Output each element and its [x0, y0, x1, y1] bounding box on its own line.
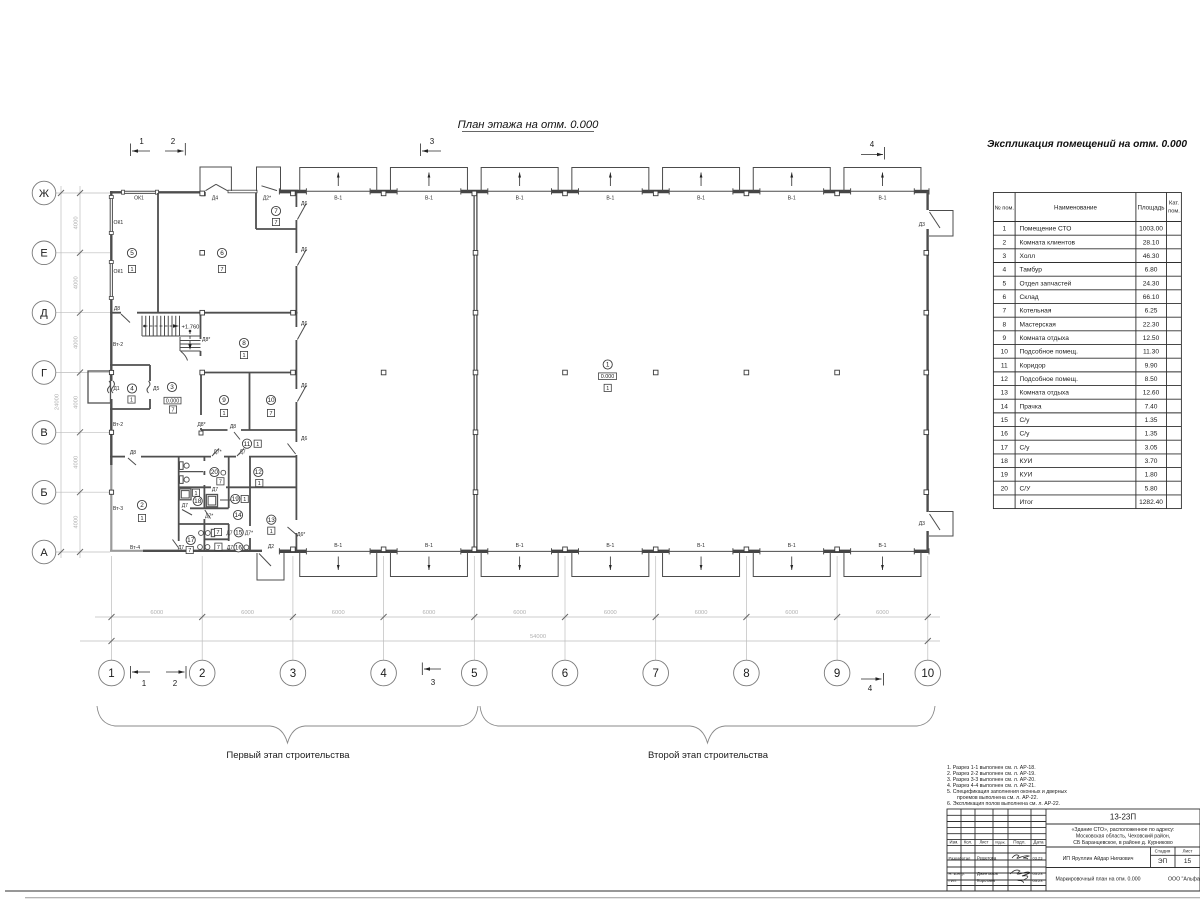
svg-text:19: 19 — [232, 496, 240, 503]
svg-text:В-1: В-1 — [334, 196, 342, 202]
svg-text:Отдел запчастей: Отдел запчастей — [1020, 279, 1072, 287]
svg-text:5: 5 — [130, 250, 134, 257]
svg-text:22.30: 22.30 — [1143, 321, 1160, 328]
svg-text:Первый этап строительства: Первый этап строительства — [226, 750, 350, 761]
svg-text:1: 1 — [139, 137, 144, 146]
svg-text:6000: 6000 — [695, 610, 708, 616]
svg-text:В-1: В-1 — [516, 543, 524, 549]
svg-text:4000: 4000 — [74, 516, 80, 529]
svg-text:1.35: 1.35 — [1145, 417, 1158, 424]
svg-text:13-23П: 13-23П — [1110, 813, 1136, 822]
svg-text:В-1: В-1 — [878, 196, 886, 202]
svg-text:ООО "Альфа: ООО "Альфа — [1168, 877, 1200, 883]
svg-text:Решетова: Решетова — [977, 856, 997, 861]
svg-text:3: 3 — [430, 137, 435, 146]
svg-text:Д8*: Д8* — [197, 422, 205, 428]
svg-text:№ пом.: № пом. — [995, 206, 1015, 212]
svg-text:Д7: Д7 — [226, 531, 232, 537]
svg-text:1: 1 — [108, 668, 114, 680]
svg-text:15: 15 — [1001, 417, 1009, 424]
svg-text:Н. контр.: Н. контр. — [949, 871, 966, 876]
svg-text:4: 4 — [130, 386, 134, 393]
svg-text:СБ Баранцевское, в районе д. К: СБ Баранцевское, в районе д. Курниково — [1073, 839, 1173, 846]
svg-text:7: 7 — [652, 668, 658, 680]
svg-text:20: 20 — [211, 469, 219, 476]
svg-text:Кол.: Кол. — [964, 840, 972, 845]
svg-text:Д6: Д6 — [301, 436, 307, 442]
svg-text:Лист: Лист — [1183, 849, 1194, 854]
svg-text:Е: Е — [40, 248, 47, 260]
svg-text:3: 3 — [290, 668, 296, 680]
svg-text:В: В — [40, 427, 47, 439]
svg-text:С/у: С/у — [1020, 431, 1031, 438]
svg-text:66.10: 66.10 — [1143, 294, 1160, 301]
svg-text:Джентазов: Джентазов — [977, 871, 999, 876]
svg-text:7: 7 — [270, 411, 273, 417]
svg-text:4000: 4000 — [74, 336, 80, 349]
svg-text:5: 5 — [471, 668, 477, 680]
svg-text:В-1: В-1 — [334, 543, 342, 549]
svg-text:1: 1 — [195, 491, 198, 497]
svg-text:6000: 6000 — [241, 610, 254, 616]
svg-text:2: 2 — [1002, 239, 1006, 246]
svg-text:Д2*: Д2* — [263, 196, 271, 202]
svg-text:Вт-4: Вт-4 — [130, 545, 140, 551]
svg-text:1: 1 — [1002, 226, 1006, 233]
svg-text:В-1: В-1 — [697, 196, 705, 202]
svg-text:Вт-2: Вт-2 — [113, 342, 123, 348]
svg-text:В-1: В-1 — [516, 196, 524, 202]
svg-text:11.30: 11.30 — [1143, 349, 1159, 356]
svg-text:13: 13 — [268, 517, 276, 524]
svg-text:КУИ: КУИ — [1020, 458, 1033, 465]
svg-text:11: 11 — [1001, 362, 1008, 369]
svg-text:Кат.: Кат. — [1169, 201, 1179, 207]
svg-text:Стадия: Стадия — [1155, 849, 1171, 854]
svg-text:03.23: 03.23 — [1032, 856, 1043, 861]
svg-text:17: 17 — [187, 537, 195, 544]
svg-text:Комната отдыха: Комната отдыха — [1020, 390, 1070, 397]
svg-text:10: 10 — [921, 668, 934, 680]
svg-text:3.70: 3.70 — [1145, 458, 1158, 465]
svg-text:03.23: 03.23 — [1032, 871, 1043, 876]
svg-text:3: 3 — [1002, 253, 1006, 260]
svg-text:12.50: 12.50 — [1143, 335, 1160, 342]
svg-text:Д3: Д3 — [919, 521, 925, 527]
svg-text:Д6: Д6 — [301, 247, 307, 253]
svg-text:В-1: В-1 — [425, 196, 433, 202]
svg-text:Б: Б — [40, 487, 47, 499]
svg-text:Д2: Д2 — [268, 544, 274, 550]
svg-text:Площадь: Площадь — [1138, 205, 1165, 212]
svg-text:15: 15 — [1184, 858, 1192, 865]
svg-text:9: 9 — [834, 668, 840, 680]
svg-text:1: 1 — [606, 362, 610, 369]
svg-text:6. Экспликация полов выполнена: 6. Экспликация полов выполнена см. л. АР… — [947, 801, 1060, 807]
svg-text:4: 4 — [1002, 267, 1006, 274]
svg-text:+1.760: +1.760 — [182, 325, 200, 331]
svg-text:4000: 4000 — [74, 396, 80, 409]
svg-text:1.80: 1.80 — [1145, 472, 1158, 479]
svg-text:ОК1: ОК1 — [134, 196, 144, 202]
svg-text:Д6: Д6 — [301, 383, 307, 389]
svg-text:Итог: Итог — [1020, 499, 1034, 506]
svg-text:ОК1: ОК1 — [114, 269, 124, 275]
svg-text:7: 7 — [219, 479, 222, 485]
svg-text:9.90: 9.90 — [1145, 362, 1158, 369]
svg-text:Комната клиентов: Комната клиентов — [1020, 239, 1076, 246]
svg-text:Д7: Д7 — [178, 545, 184, 551]
svg-text:2: 2 — [171, 137, 176, 146]
svg-text:1: 1 — [141, 516, 144, 522]
svg-text:10: 10 — [1001, 349, 1009, 356]
svg-text:10: 10 — [267, 397, 275, 404]
svg-text:1003.00: 1003.00 — [1139, 226, 1163, 233]
svg-text:8: 8 — [1002, 321, 1006, 328]
svg-text:1: 1 — [142, 679, 147, 688]
svg-text:7: 7 — [221, 267, 224, 273]
svg-text:План этажа на отм. 0.000: План этажа на отм. 0.000 — [458, 119, 599, 131]
svg-text:Мдок.: Мдок. — [995, 841, 1005, 845]
svg-text:Экспликация помещений на отм.: Экспликация помещений на отм. 0.000 — [987, 139, 1187, 150]
svg-text:12: 12 — [1001, 376, 1009, 383]
svg-text:15: 15 — [235, 529, 243, 536]
svg-text:9: 9 — [222, 397, 226, 404]
svg-text:В-1: В-1 — [878, 543, 886, 549]
svg-text:В-1: В-1 — [425, 543, 433, 549]
svg-text:9: 9 — [1002, 335, 1006, 342]
svg-text:Дата: Дата — [1033, 840, 1044, 845]
svg-text:6000: 6000 — [150, 610, 163, 616]
svg-text:Изм.: Изм. — [950, 840, 959, 845]
svg-text:7: 7 — [172, 408, 175, 414]
svg-text:Второй этап строительства: Второй этап строительства — [648, 750, 769, 761]
svg-text:Лист: Лист — [979, 840, 988, 845]
svg-text:Московская область, Чеховский: Московская область, Чеховский район, — [1076, 833, 1170, 840]
svg-text:5.80: 5.80 — [1145, 485, 1158, 492]
svg-text:4000: 4000 — [74, 276, 80, 289]
svg-text:8.50: 8.50 — [1145, 376, 1158, 383]
svg-text:1: 1 — [270, 529, 273, 535]
svg-text:Д7: Д7 — [227, 545, 233, 551]
svg-text:6000: 6000 — [876, 610, 889, 616]
svg-text:6000: 6000 — [332, 610, 345, 616]
svg-text:1282.40: 1282.40 — [1139, 499, 1163, 506]
svg-text:Д7*: Д7* — [245, 531, 253, 537]
svg-text:С/У: С/У — [1020, 485, 1032, 492]
svg-text:13: 13 — [1001, 390, 1009, 397]
svg-text:4000: 4000 — [74, 216, 80, 229]
svg-text:Д8: Д8 — [114, 306, 120, 312]
svg-text:КУИ: КУИ — [1020, 472, 1033, 479]
svg-text:18: 18 — [1001, 458, 1009, 465]
svg-text:24.30: 24.30 — [1143, 280, 1160, 287]
svg-text:Д7: Д7 — [182, 503, 188, 509]
svg-text:Д6*: Д6* — [297, 532, 305, 538]
svg-text:12.60: 12.60 — [1143, 390, 1160, 397]
svg-text:17: 17 — [1001, 444, 1009, 451]
svg-text:14: 14 — [1001, 403, 1009, 410]
svg-text:24000: 24000 — [55, 394, 61, 410]
svg-text:Помещение СТО: Помещение СТО — [1020, 226, 1072, 233]
svg-text:7: 7 — [217, 530, 220, 536]
svg-text:Д: Д — [40, 308, 48, 320]
svg-text:4: 4 — [870, 140, 875, 149]
svg-text:7: 7 — [217, 545, 220, 551]
svg-text:Подл.: Подл. — [1013, 840, 1025, 845]
svg-text:Коридор: Коридор — [1020, 362, 1046, 369]
svg-text:Комната отдыха: Комната отдыха — [1020, 335, 1070, 342]
svg-text:Д6: Д6 — [301, 321, 307, 327]
svg-text:Прачка: Прачка — [1020, 403, 1042, 410]
svg-text:6: 6 — [1002, 294, 1006, 301]
svg-text:ОК1: ОК1 — [114, 220, 124, 226]
svg-text:4: 4 — [868, 684, 873, 693]
svg-text:7: 7 — [275, 220, 278, 226]
svg-text:ЭП: ЭП — [1158, 858, 1168, 865]
svg-text:Д3: Д3 — [919, 222, 925, 228]
svg-text:7: 7 — [1002, 308, 1006, 315]
svg-text:Котельная: Котельная — [1020, 308, 1052, 315]
svg-text:7: 7 — [188, 548, 191, 554]
svg-text:ГИП: ГИП — [949, 878, 957, 883]
svg-text:11: 11 — [244, 441, 251, 448]
svg-text:С/у: С/у — [1020, 417, 1031, 424]
svg-text:46.30: 46.30 — [1143, 253, 1160, 260]
svg-text:Д5: Д5 — [153, 386, 159, 392]
svg-text:16: 16 — [235, 544, 243, 551]
svg-text:5: 5 — [1002, 280, 1006, 287]
svg-text:6000: 6000 — [422, 610, 435, 616]
svg-text:Вт-2: Вт-2 — [113, 422, 123, 428]
svg-text:Разработал: Разработал — [949, 856, 971, 861]
svg-text:1: 1 — [223, 411, 226, 417]
svg-text:Коротаев: Коротаев — [977, 878, 996, 883]
svg-text:Подсобное помещ.: Подсобное помещ. — [1020, 375, 1079, 383]
svg-text:С/у: С/у — [1020, 444, 1031, 451]
svg-text:Вт-3: Вт-3 — [113, 506, 123, 512]
svg-text:Подсобное помещ.: Подсобное помещ. — [1020, 348, 1079, 356]
svg-text:3: 3 — [170, 384, 174, 391]
svg-text:Д6: Д6 — [301, 201, 307, 207]
svg-text:6: 6 — [220, 250, 224, 257]
svg-text:8: 8 — [242, 340, 246, 347]
svg-text:В-1: В-1 — [697, 543, 705, 549]
svg-text:Маркировочный план на отм. 0.0: Маркировочный план на отм. 0.000 — [1056, 876, 1141, 883]
svg-text:ИП Яруллин Айдар Ниязович: ИП Яруллин Айдар Ниязович — [1063, 855, 1134, 862]
svg-text:16: 16 — [1001, 431, 1009, 438]
svg-text:4000: 4000 — [74, 456, 80, 469]
svg-text:0.000: 0.000 — [166, 399, 180, 405]
svg-text:Д4: Д4 — [212, 196, 218, 202]
svg-text:Наименование: Наименование — [1054, 205, 1097, 212]
svg-text:19: 19 — [1001, 472, 1009, 479]
svg-text:В-1: В-1 — [606, 543, 614, 549]
svg-text:В-1: В-1 — [606, 196, 614, 202]
svg-text:7: 7 — [274, 208, 278, 215]
svg-text:пом.: пом. — [1168, 209, 1180, 215]
svg-text:6000: 6000 — [785, 610, 798, 616]
svg-text:8: 8 — [743, 668, 749, 680]
svg-text:А: А — [40, 547, 48, 559]
svg-text:Г: Г — [41, 367, 47, 379]
svg-text:Холл: Холл — [1020, 253, 1036, 260]
svg-text:1: 1 — [131, 267, 134, 273]
svg-text:В-1: В-1 — [788, 543, 796, 549]
svg-text:Д8: Д8 — [130, 450, 136, 456]
svg-text:1: 1 — [130, 398, 133, 404]
svg-text:0.000: 0.000 — [601, 374, 615, 380]
svg-text:7.40: 7.40 — [1145, 403, 1158, 410]
svg-text:2: 2 — [173, 679, 178, 688]
svg-text:Тамбур: Тамбур — [1020, 266, 1043, 274]
svg-text:28.10: 28.10 — [1143, 239, 1160, 246]
svg-text:1: 1 — [243, 353, 246, 359]
svg-text:1.35: 1.35 — [1145, 431, 1158, 438]
svg-text:1: 1 — [606, 386, 609, 392]
svg-text:1: 1 — [258, 481, 261, 487]
svg-text:6.80: 6.80 — [1145, 267, 1158, 274]
svg-text:Д8: Д8 — [230, 424, 236, 430]
svg-text:Д1: Д1 — [113, 386, 119, 392]
svg-text:2: 2 — [199, 668, 205, 680]
svg-text:18: 18 — [194, 498, 202, 505]
svg-text:20: 20 — [1001, 485, 1009, 492]
svg-text:12: 12 — [255, 469, 263, 476]
svg-text:1: 1 — [243, 497, 246, 503]
svg-text:Д8*: Д8* — [202, 337, 210, 343]
svg-text:Д7: Д7 — [212, 487, 218, 493]
svg-text:4: 4 — [380, 668, 387, 680]
svg-text:В-1: В-1 — [788, 196, 796, 202]
svg-text:1: 1 — [256, 442, 259, 448]
svg-text:3: 3 — [431, 678, 436, 687]
svg-text:Мастерская: Мастерская — [1020, 321, 1057, 328]
svg-text:54000: 54000 — [530, 634, 546, 640]
svg-text:6.25: 6.25 — [1145, 308, 1158, 315]
svg-text:Склад: Склад — [1020, 294, 1039, 301]
svg-text:6000: 6000 — [513, 610, 526, 616]
svg-text:6000: 6000 — [604, 610, 617, 616]
svg-text:3.05: 3.05 — [1145, 444, 1158, 451]
svg-text:«Здание СТО», расположенное по: «Здание СТО», расположенное по адресу: — [1072, 827, 1175, 833]
svg-text:03.23: 03.23 — [1032, 878, 1043, 883]
svg-text:2: 2 — [140, 502, 144, 509]
svg-text:6: 6 — [562, 668, 568, 680]
svg-text:14: 14 — [234, 512, 242, 519]
svg-text:Ж: Ж — [39, 188, 49, 200]
